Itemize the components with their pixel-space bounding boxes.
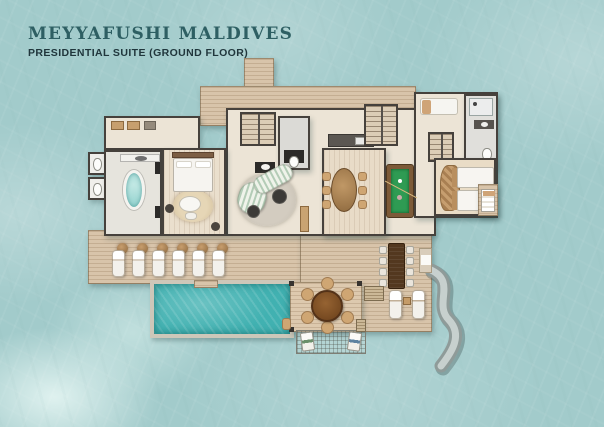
screenshot-root: MEYYAFUSHI MALDIVES PRESIDENTIAL SUITE (… [0,0,604,427]
patio-chair [341,288,354,301]
pergola-post [289,281,294,286]
coffee-table [272,189,287,204]
terrace-chair [379,257,387,265]
sun-lounger [112,250,125,277]
daybed-pillow [483,191,495,196]
main-staircase [364,104,398,146]
billiard-balls [398,179,402,183]
towel [421,255,431,265]
towel-bench [419,248,432,273]
floor-plan [0,0,604,427]
side-stool [165,204,174,213]
shower-head [473,102,477,106]
stair-rail [258,114,260,144]
king-bed [173,158,213,192]
billiard-balls [397,195,402,200]
toilet [93,183,102,196]
patio-chair [321,277,334,290]
sun-lounger [212,250,225,277]
net-cushion [347,331,363,352]
round-patio-table [311,290,343,322]
terrace-chair [406,268,414,276]
daybed [420,98,458,115]
terrace-chair [379,268,387,276]
door-threshold [155,206,160,218]
pillow [195,161,211,168]
shower [469,98,493,116]
sun-lounger [152,250,165,277]
dining-chair [358,186,367,195]
pergola-post [357,281,362,286]
long-dining-table [388,243,405,289]
private-balcony [478,184,498,216]
dining-chair [322,172,331,181]
entry-staircase [240,112,276,146]
patio-chair [341,311,354,324]
basin [481,122,488,127]
ottoman [185,212,197,220]
stair-rail [381,106,383,144]
swimming-pool [150,280,294,338]
dining-table [331,168,357,212]
living-room [226,148,322,236]
sink [135,156,147,161]
billiard-table [386,164,414,218]
sun-lounger [389,290,402,319]
coffee-table [247,205,260,218]
luggage [127,121,140,130]
deck-chair [282,318,291,330]
terrace-chair [406,279,414,287]
dining-chair [322,200,331,209]
dressing-room [104,116,200,150]
stair-rail [441,134,443,160]
door-threshold [155,162,160,174]
pillow [176,161,192,168]
master-bedroom [162,148,226,236]
terrace-chair [379,246,387,254]
dining-chair [358,200,367,209]
bathtub [123,170,145,210]
armchair [179,196,201,212]
dining-room [322,148,386,236]
balcony-daybed [481,189,495,212]
deck-ladder [356,319,366,332]
wardrobe [144,121,156,130]
dining-chair [358,172,367,181]
dining-chair [322,186,331,195]
pool-steps [194,280,218,288]
games-room [386,148,434,236]
vanity [120,154,160,162]
daybed-pillow [422,100,431,114]
sea-steps [364,286,384,301]
toilet [93,158,102,171]
terrace-chair [406,257,414,265]
side-table [403,297,411,305]
luggage [111,121,124,130]
sun-lounger [172,250,185,277]
sun-lounger [192,250,205,277]
sun-lounger [412,290,425,319]
net-cushion [300,331,316,352]
patio-chair [321,321,334,334]
sun-lounger [132,250,145,277]
master-bathroom [104,150,162,236]
bath-counter [474,120,494,129]
console-shelf [300,206,309,232]
side-stool [211,222,220,231]
terrace-chair [406,246,414,254]
